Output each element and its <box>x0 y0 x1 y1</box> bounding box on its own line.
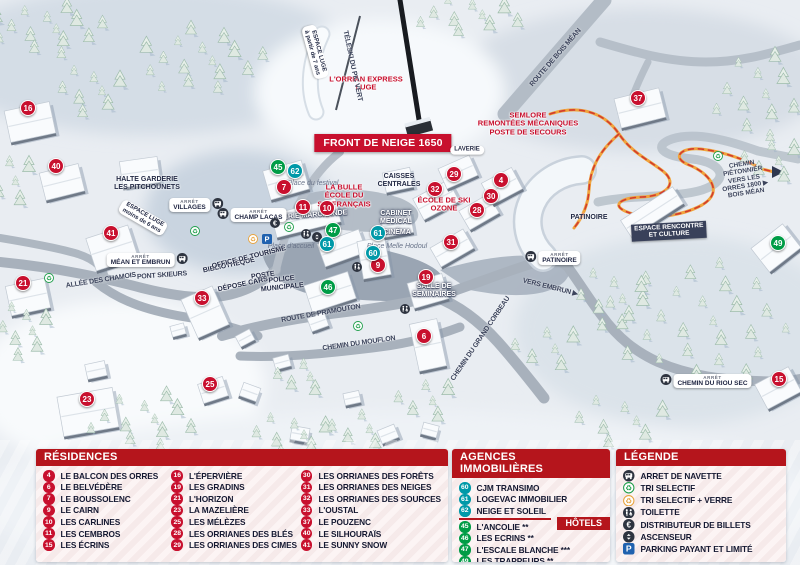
map-marker-21: 21 <box>15 275 31 291</box>
residence-number: 31 <box>301 482 313 494</box>
arret-name: CHEMIN DU RIOU SEC <box>677 380 747 387</box>
svg-text:€: € <box>273 220 277 227</box>
legende-item: ♻TRI SELECTIF + VERRE <box>623 495 779 507</box>
residence-label: LE BOUSSOLENC <box>61 494 131 504</box>
legende-label: PARKING PAYANT ET LIMITÉ <box>641 544 753 554</box>
residence-label: L'ÉPERVIÈRE <box>189 471 242 481</box>
map-marker-62: 62 <box>287 163 303 179</box>
arret-name: PATINOIRE <box>542 257 576 264</box>
hotels-divider-line <box>459 518 551 520</box>
svg-text:♻: ♻ <box>625 484 632 493</box>
map-marker-29: 29 <box>446 166 462 182</box>
map-label: Place d'accueil <box>268 243 314 251</box>
recycle-icon: ♻ <box>713 148 723 166</box>
residence-number: 40 <box>301 528 313 540</box>
residence-number: 21 <box>171 493 183 505</box>
agency-label: NEIGE ET SOLEIL <box>477 506 547 516</box>
map-marker-33: 33 <box>194 290 210 306</box>
agency-label: CJM TRANSIMO <box>477 483 540 493</box>
svg-text:P: P <box>626 544 632 554</box>
residence-number: 25 <box>171 516 183 528</box>
panel-residences: RÉSIDENCES 4LE BALCON DES ORRES6LE BELVÉ… <box>36 449 448 562</box>
parking-icon: P <box>262 231 272 249</box>
residences-list: 4LE BALCON DES ORRES6LE BELVÉDÈRE7LE BOU… <box>36 466 448 555</box>
residence-item: 7LE BOUSSOLENC <box>43 493 167 505</box>
wc-icon <box>400 301 410 319</box>
map-marker-28: 28 <box>469 202 485 218</box>
agency-label: LOGEVAC IMMOBILIER <box>477 494 568 504</box>
map-label: CHEMIN DU MOUFLON <box>322 335 396 353</box>
agency-number: 60 <box>459 482 471 494</box>
bus-stop-pill: ARRÊTCHEMIN DU RIOU SEC <box>673 374 751 388</box>
residence-number: 30 <box>301 470 313 482</box>
map-marker-7: 7 <box>276 179 292 195</box>
map-marker-60: 60 <box>365 245 381 261</box>
recycle-icon: ♻ <box>284 219 294 237</box>
residence-number: 41 <box>301 539 313 551</box>
map-marker-16: 16 <box>20 100 36 116</box>
map-label: L'ORRIAN EXPRESS LUGE <box>329 76 402 93</box>
legende-item: ♻TRI SELECTIF <box>623 482 779 494</box>
residence-item: 6LE BELVÉDÈRE <box>43 482 167 494</box>
legende-item: ASCENSEUR <box>623 531 779 543</box>
residence-item: 4LE BALCON DES ORRES <box>43 470 167 482</box>
bus-icon <box>218 206 229 224</box>
agency-number: 62 <box>459 505 471 517</box>
hotel-item: 47L'ESCALE BLANCHE *** <box>459 544 603 556</box>
map-marker-32: 32 <box>427 181 443 197</box>
agences-hotels-list: 60CJM TRANSIMO61LOGEVAC IMMOBILIER62NEIG… <box>452 478 610 562</box>
residence-item: 37LE POUZENC <box>301 516 441 528</box>
map-label: LAVERIE <box>450 146 484 155</box>
residence-number: 32 <box>301 493 313 505</box>
residence-number: 15 <box>43 539 55 551</box>
residence-item: 25LES MÉLÈZES <box>171 516 296 528</box>
residence-item: 10LES CARLINES <box>43 516 167 528</box>
map-label: HALTE GARDERIE LES PITCHOUNETS <box>114 176 180 192</box>
residence-number: 23 <box>171 505 183 517</box>
bus-stop-chemin-du-riou-sec: ARRÊTCHEMIN DU RIOU SEC <box>660 372 751 390</box>
legende-label: TRI SELECTIF + VERRE <box>641 495 733 505</box>
residence-item: 40LE SILHOURAÏS <box>301 528 441 540</box>
map-label: ALLÉE DES CHAMOIS <box>65 272 136 291</box>
svg-text:♻: ♻ <box>355 323 361 330</box>
agency-number: 61 <box>459 494 471 506</box>
hotel-number: 46 <box>459 533 471 545</box>
map-marker-61: 61 <box>319 236 335 252</box>
map-marker-23: 23 <box>79 391 95 407</box>
hotel-item: 49LES TRAPPEURS ** <box>459 556 603 563</box>
residence-number: 4 <box>43 470 55 482</box>
residence-label: LES ORRIANES DES NEIGES <box>318 482 431 492</box>
panel-residences-title: RÉSIDENCES <box>36 449 448 466</box>
panel-agences-hotels: AGENCES IMMOBILIÈRES 60CJM TRANSIMO61LOG… <box>452 449 610 562</box>
map-label: BIBLIOTHÈQUE <box>202 257 255 276</box>
map-label: TÉLÉSKI DU PIC VERT <box>341 30 364 102</box>
residence-number: 29 <box>171 539 183 551</box>
map-marker-41: 41 <box>103 225 119 241</box>
residence-label: LES ORRIANES DES BLÉS <box>189 529 293 539</box>
residence-item: 15LES ÉCRINS <box>43 539 167 551</box>
map-label: CAISSES CENTRALES <box>378 173 421 189</box>
legende-label: ARRET DE NAVETTE <box>641 471 722 481</box>
map-marker-15: 15 <box>771 371 787 387</box>
map-label: CHEMIN DU GRAND CORBEAU <box>450 295 512 382</box>
bus-stop-m-an-et-embrun: ARRÊTMÉAN ET EMBRUN <box>107 251 188 269</box>
residence-label: L'HORIZON <box>189 494 233 504</box>
residence-item: 9LE CAIRN <box>43 505 167 517</box>
residence-label: LE BALCON DES ORRES <box>61 471 159 481</box>
map-marker-10: 10 <box>319 200 335 216</box>
svg-text:♻: ♻ <box>250 236 256 243</box>
map-label: CINÉMA <box>383 229 411 237</box>
map-label: SEMLORE REMONTÉES MÉCANIQUES POSTE DE SE… <box>478 111 578 136</box>
wc-icon <box>352 259 362 277</box>
agency-item: 61LOGEVAC IMMOBILIER <box>459 494 603 506</box>
residence-label: LES CEMBROS <box>61 529 121 539</box>
residence-number: 19 <box>171 482 183 494</box>
residence-item: 32LES ORRIANES DES SOURCES <box>301 493 441 505</box>
residence-number: 9 <box>43 505 55 517</box>
map-marker-40: 40 <box>48 158 64 174</box>
map-marker-30: 30 <box>483 188 499 204</box>
residence-item: 19LES GRADINS <box>171 482 296 494</box>
wc-icon <box>301 226 311 244</box>
front-de-neige-banner: FRONT DE NEIGE 1650 <box>314 134 451 152</box>
map-marker-4: 4 <box>493 172 509 188</box>
svg-text:♻: ♻ <box>715 153 721 160</box>
map-label: ROUTE DE BOIS MÉAN <box>529 27 584 88</box>
agency-item: 62NEIGE ET SOLEIL <box>459 505 603 517</box>
map-label: VERS EMBRUN ▶ <box>522 277 579 298</box>
hotel-label: LES ECRINS ** <box>477 533 534 543</box>
residence-item: 29LES ORRIANES DES CIMES <box>171 539 296 551</box>
residence-label: L'OUSTAL <box>318 505 358 515</box>
map-label: POLICE MUNICIPALE <box>260 274 304 294</box>
wc-icon <box>623 507 635 519</box>
svg-text:♻: ♻ <box>46 275 52 282</box>
residence-number: 10 <box>43 516 55 528</box>
svg-text:♻: ♻ <box>192 228 198 235</box>
agency-item: 60CJM TRANSIMO <box>459 482 603 494</box>
legende-label: TOILETTE <box>641 507 680 517</box>
map-label: POSTE <box>251 270 276 281</box>
legende-item: €DISTRIBUTEUR DE BILLETS <box>623 519 779 531</box>
residence-number: 7 <box>43 493 55 505</box>
recycle-icon: ♻ <box>190 223 200 241</box>
hotel-number: 45 <box>459 521 471 533</box>
residence-number: 33 <box>301 505 313 517</box>
map-label: PATINOIRE <box>570 214 607 222</box>
map-label: ESPACE LUGE à partir de 7 ans <box>301 24 330 80</box>
legende-label: ASCENSEUR <box>641 532 692 542</box>
residence-label: LE SILHOURAÏS <box>318 529 381 539</box>
residence-item: 33L'OUSTAL <box>301 505 441 517</box>
map-label: ROUTE DE PRAMOUTON <box>281 303 361 325</box>
bus-stop-pill: ARRÊTPATINOIRE <box>538 251 580 265</box>
map-label: ESPACE LUGE moins de 6 ans <box>117 198 169 237</box>
map-marker-49: 49 <box>770 235 786 251</box>
atm-icon: € <box>270 215 280 233</box>
recycle-icon: ♻ <box>623 482 635 494</box>
bus-icon <box>176 251 187 269</box>
map-marker-31: 31 <box>443 234 459 250</box>
residence-number: 11 <box>43 528 55 540</box>
residence-label: LE BELVÉDÈRE <box>61 482 123 492</box>
bus-icon <box>660 372 671 390</box>
residence-label: LA MAZELIÈRE <box>189 505 249 515</box>
parking-icon: P <box>623 543 635 555</box>
svg-text:P: P <box>264 235 269 244</box>
map-label: Place du festival <box>288 180 339 188</box>
map-marker-37: 37 <box>630 90 646 106</box>
map-marker-11: 11 <box>295 199 311 215</box>
svg-text:♻: ♻ <box>286 224 292 231</box>
legende-label: DISTRIBUTEUR DE BILLETS <box>641 520 751 530</box>
hotel-label: LES TRAPPEURS ** <box>477 556 554 562</box>
map-marker-6: 6 <box>416 328 432 344</box>
residence-label: LES ORRIANES DES SOURCES <box>318 494 441 504</box>
legende-item: TOILETTE <box>623 507 779 519</box>
residence-label: LE SUNNY SNOW <box>318 540 387 550</box>
hotel-label: L'ANCOLIE ** <box>477 522 529 532</box>
arret-name: MÉAN ET EMBRUN <box>111 259 171 266</box>
svg-text:€: € <box>627 520 632 529</box>
hotel-label: L'ESCALE BLANCHE *** <box>477 545 571 555</box>
residence-label: LES ÉCRINS <box>61 540 110 550</box>
map-label: SALLE DE SÉMINAIRES <box>412 283 456 299</box>
hotel-item: 46LES ECRINS ** <box>459 533 603 545</box>
verre-icon: ♻ <box>248 231 258 249</box>
svg-text:♻: ♻ <box>625 496 632 505</box>
panel-legende-title: LÉGENDE <box>616 449 786 466</box>
map-marker-46: 46 <box>320 279 336 295</box>
bus-stop-pill: ARRÊTMÉAN ET EMBRUN <box>107 253 175 267</box>
residence-number: 6 <box>43 482 55 494</box>
residence-label: LE CAIRN <box>61 505 99 515</box>
map-marker-25: 25 <box>202 376 218 392</box>
map-label: PONT SKIEURS <box>137 270 188 281</box>
panel-agences-title: AGENCES IMMOBILIÈRES <box>452 449 610 478</box>
residence-label: LES MÉLÈZES <box>189 517 246 527</box>
residence-item: 28LES ORRIANES DES BLÉS <box>171 528 296 540</box>
map-label: ÉCOLE DE SKI OZONE <box>418 197 471 214</box>
bus-stop-patinoire: ARRÊTPATINOIRE <box>525 249 580 267</box>
bus-stop-pill: ARRÊTVILLAGES <box>169 198 210 212</box>
residence-item: 30LES ORRIANES DES FORÊTS <box>301 470 441 482</box>
map-marker-19: 19 <box>418 269 434 285</box>
residence-item: 21L'HORIZON <box>171 493 296 505</box>
bus-icon <box>623 470 635 482</box>
residence-item: 41LE SUNNY SNOW <box>301 539 441 551</box>
panel-legende: LÉGENDE ARRET DE NAVETTE♻TRI SELECTIF♻TR… <box>616 449 786 562</box>
legende-item: ARRET DE NAVETTE <box>623 470 779 482</box>
map-label: ESPACE RENCONTRE ET CULTURE <box>631 221 707 241</box>
legende-label: TRI SELECTIF <box>641 483 696 493</box>
residence-item: 16L'ÉPERVIÈRE <box>171 470 296 482</box>
recycle-icon: ♻ <box>44 270 54 288</box>
hotel-number: 47 <box>459 544 471 556</box>
residence-item: 23LA MAZELIÈRE <box>171 505 296 517</box>
residence-label: LES ORRIANES DES FORÊTS <box>318 471 433 481</box>
map-marker-61: 61 <box>370 225 386 241</box>
residence-item: 31LES ORRIANES DES NEIGES <box>301 482 441 494</box>
bus-icon <box>525 249 536 267</box>
hotels-divider: HÔTELS <box>459 518 603 521</box>
hotel-number: 49 <box>459 556 471 563</box>
residence-number: 37 <box>301 516 313 528</box>
lift-icon <box>623 531 635 543</box>
atm-icon: € <box>623 519 635 531</box>
hotels-title: HÔTELS <box>557 517 610 530</box>
bus-stop-villages: ARRÊTVILLAGES <box>169 196 223 214</box>
resort-map-page: { "map": { "banner": "FRONT DE NEIGE 165… <box>0 0 800 565</box>
map-marker-45: 45 <box>270 159 286 175</box>
legende-list: ARRET DE NAVETTE♻TRI SELECTIF♻TRI SELECT… <box>616 466 786 559</box>
residence-label: LE POUZENC <box>318 517 370 527</box>
residence-number: 28 <box>171 528 183 540</box>
legende-item: PPARKING PAYANT ET LIMITÉ <box>623 543 779 555</box>
verre-icon: ♻ <box>623 495 635 507</box>
map-label: DÉPOSE CARS <box>217 276 268 294</box>
map-label: CABINET MÉDICAL <box>380 210 412 226</box>
residence-number: 16 <box>171 470 183 482</box>
residence-label: LES CARLINES <box>61 517 121 527</box>
residence-item: 11LES CEMBROS <box>43 528 167 540</box>
arret-name: VILLAGES <box>173 204 206 211</box>
residence-label: LES ORRIANES DES CIMES <box>189 540 297 550</box>
residence-label: LES GRADINS <box>189 482 245 492</box>
recycle-icon: ♻ <box>353 318 363 336</box>
